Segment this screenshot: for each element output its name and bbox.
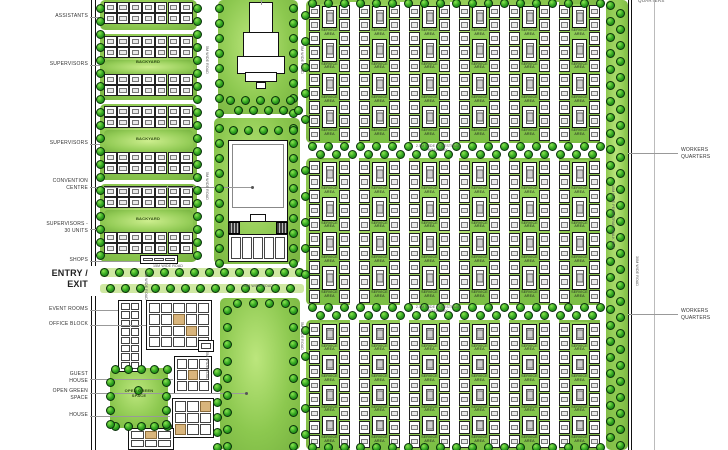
worker-unit <box>559 337 570 350</box>
worker-unit <box>559 115 570 128</box>
rowhouse-unit <box>142 152 155 163</box>
worker-unit <box>359 323 370 336</box>
worker-unit <box>589 261 600 274</box>
room <box>173 303 184 313</box>
leader-line <box>628 314 678 315</box>
service-building <box>472 6 487 28</box>
worker-unit <box>459 247 470 260</box>
room <box>158 440 171 448</box>
tree-icon <box>289 126 298 135</box>
worker-unit <box>559 365 570 378</box>
tree-icon <box>606 353 615 362</box>
tree-icon <box>580 443 589 450</box>
tree-icon <box>606 33 615 42</box>
tree-icon <box>516 142 525 151</box>
worker-unit <box>589 365 600 378</box>
tree-icon <box>280 268 289 277</box>
tree-icon <box>193 69 202 78</box>
tree-icon <box>588 150 597 159</box>
worker-unit <box>559 323 570 336</box>
temple-top <box>249 2 273 34</box>
worker-unit <box>489 101 500 114</box>
tree-icon <box>281 299 290 308</box>
rowhouse-unit <box>168 117 181 128</box>
room <box>149 303 160 313</box>
tree-icon <box>193 121 202 130</box>
tree-icon <box>404 443 413 450</box>
service-area-label: SERVICE AREA <box>420 256 439 264</box>
rowhouse-unit <box>180 47 193 58</box>
worker-unit <box>589 19 600 32</box>
walk-gap <box>550 2 559 145</box>
rowhouse-unit <box>142 74 155 85</box>
worker-unit <box>459 365 470 378</box>
worker-unit <box>589 247 600 260</box>
tree-icon <box>301 192 310 201</box>
service-area-label: SERVICE AREA <box>370 375 389 383</box>
tree-icon <box>420 0 429 8</box>
worker-unit <box>559 32 570 45</box>
walk-gap <box>500 2 509 145</box>
worker-unit <box>509 323 520 336</box>
worker-unit <box>309 337 320 350</box>
tree-icon <box>193 95 202 104</box>
service-building <box>372 106 387 128</box>
tree-icon <box>286 284 295 293</box>
tree-icon <box>223 340 232 349</box>
worker-unit <box>459 190 470 203</box>
worker-unit <box>439 115 450 128</box>
tree-icon <box>316 150 325 159</box>
worker-unit <box>589 175 600 188</box>
rowhouse-unit <box>129 74 142 85</box>
label-house: HOUSE <box>20 412 88 419</box>
tree-icon <box>356 303 365 312</box>
tree-icon <box>229 126 238 135</box>
worker-unit <box>409 247 420 260</box>
room <box>177 381 187 391</box>
tree-icon <box>596 303 605 312</box>
worker-unit <box>489 247 500 260</box>
worker-unit <box>489 351 500 364</box>
tree-icon <box>606 321 615 330</box>
rowhouse-unit <box>117 85 130 96</box>
service-area-label: SERVICE AREA <box>470 129 489 137</box>
worker-unit <box>539 190 550 203</box>
worker-unit <box>359 407 370 420</box>
green-panel-central-park <box>220 298 300 450</box>
tree-icon <box>308 0 317 8</box>
room <box>188 381 198 391</box>
worker-unit <box>439 175 450 188</box>
worker-unit <box>389 46 400 59</box>
room <box>175 401 186 412</box>
tree-icon <box>616 73 625 82</box>
tree-icon <box>606 161 615 170</box>
tree-icon <box>215 139 224 148</box>
worker-unit <box>309 60 320 73</box>
worker-unit <box>309 365 320 378</box>
worker-unit <box>509 161 520 174</box>
service-building <box>472 39 487 61</box>
tree-icon <box>492 150 501 159</box>
worker-unit <box>309 379 320 392</box>
tree-icon <box>279 106 288 115</box>
service-building <box>372 197 387 221</box>
convention-stub <box>250 214 266 222</box>
worker-unit <box>539 218 550 231</box>
west-boundary-a <box>91 0 92 266</box>
tree-icon <box>606 81 615 90</box>
service-area-label: SERVICE AREA <box>470 63 489 71</box>
tree-icon <box>96 108 105 117</box>
tree-icon <box>213 413 222 422</box>
tree-icon <box>564 142 573 151</box>
tree-icon <box>96 56 105 65</box>
worker-unit <box>359 379 370 392</box>
worker-unit <box>459 379 470 392</box>
tree-icon <box>223 374 232 383</box>
rowhouse-unit <box>129 232 142 243</box>
tree-icon <box>193 56 202 65</box>
walk-gap <box>350 2 359 145</box>
tree-icon <box>380 150 389 159</box>
worker-unit <box>339 19 350 32</box>
tree-icon <box>324 0 333 8</box>
tree-icon <box>396 150 405 159</box>
rowhouse-unit <box>142 85 155 96</box>
worker-unit <box>389 32 400 45</box>
service-building <box>322 162 337 186</box>
worker-unit <box>439 379 450 392</box>
tree-icon <box>616 169 625 178</box>
tree-icon <box>372 142 381 151</box>
room <box>173 326 184 336</box>
service-area-label: SERVICE AREA <box>520 222 539 230</box>
tree-icon <box>540 150 549 159</box>
service-area-label: SERVICE AREA <box>520 129 539 137</box>
worker-unit <box>389 365 400 378</box>
tree-icon <box>289 229 298 238</box>
worker-unit <box>459 204 470 217</box>
tree-icon <box>289 244 298 253</box>
worker-unit <box>359 247 370 260</box>
room <box>161 303 172 313</box>
tree-icon <box>388 142 397 151</box>
worker-unit <box>309 233 320 246</box>
convention-wing-left <box>228 222 240 234</box>
tree-icon <box>124 365 133 374</box>
worker-unit <box>509 115 520 128</box>
road-label: 2.5M WIDE PEDESTRIAN WALK WAY <box>408 144 468 152</box>
worker-unit <box>459 128 470 141</box>
worker-unit <box>389 379 400 392</box>
room <box>131 337 140 344</box>
worker-unit <box>559 101 570 114</box>
tree-icon <box>289 306 298 315</box>
tree-icon <box>233 299 242 308</box>
tree-icon <box>137 365 146 374</box>
tree-icon <box>96 4 105 13</box>
worker-unit <box>539 351 550 364</box>
worker-unit <box>309 74 320 87</box>
tree-icon <box>175 268 184 277</box>
worker-unit <box>459 261 470 274</box>
tree-icon <box>580 0 589 8</box>
worker-unit <box>409 19 420 32</box>
worker-unit <box>459 87 470 100</box>
service-area-label: SERVICE AREA <box>520 375 539 383</box>
rowhouse-unit <box>104 2 117 13</box>
service-area-label: SERVICE AREA <box>320 63 339 71</box>
tree-icon <box>332 150 341 159</box>
tree-icon <box>213 443 222 450</box>
leader-line <box>90 261 140 262</box>
worker-unit <box>439 351 450 364</box>
tree-icon <box>364 311 373 320</box>
rowhouse-unit <box>142 232 155 243</box>
worker-unit <box>509 421 520 434</box>
rowhouse-unit <box>168 74 181 85</box>
west-boundary-a2 <box>91 296 92 450</box>
tree-icon <box>476 150 485 159</box>
worker-unit <box>459 218 470 231</box>
worker-unit <box>409 60 420 73</box>
service-area-label: SERVICE AREA <box>370 96 389 104</box>
worker-unit <box>359 74 370 87</box>
worker-unit <box>389 101 400 114</box>
worker-unit <box>589 421 600 434</box>
worker-unit <box>559 19 570 32</box>
rowhouse-unit <box>168 152 181 163</box>
rowhouse-unit <box>155 163 168 174</box>
backyard-label-3: BACKYARD <box>128 217 168 222</box>
service-building <box>322 385 337 405</box>
convention-inner <box>232 144 284 208</box>
worker-unit <box>459 175 470 188</box>
worker-unit <box>489 218 500 231</box>
tree-icon <box>289 139 298 148</box>
worker-unit <box>439 101 450 114</box>
worker-unit <box>389 190 400 203</box>
worker-unit <box>589 60 600 73</box>
room <box>253 237 263 259</box>
worker-unit <box>339 74 350 87</box>
worker-unit <box>539 261 550 274</box>
tree-icon <box>508 311 517 320</box>
service-area-label: SERVICE AREA <box>470 29 489 37</box>
service-building <box>372 416 387 436</box>
room <box>131 328 140 335</box>
worker-unit <box>309 421 320 434</box>
tree-icon <box>468 443 477 450</box>
room <box>149 337 160 347</box>
tree-icon <box>289 357 298 366</box>
service-building <box>572 355 587 375</box>
tree-icon <box>580 142 589 151</box>
label-assistants: ASSISTANTS <box>20 13 88 20</box>
worker-unit <box>459 337 470 350</box>
worker-unit <box>389 19 400 32</box>
tree-icon <box>137 422 146 431</box>
worker-unit <box>339 393 350 406</box>
tree-icon <box>162 378 171 387</box>
worker-unit <box>509 247 520 260</box>
room <box>173 337 184 347</box>
service-building <box>572 39 587 61</box>
tree-icon <box>340 142 349 151</box>
road-label: 5M WIDE ROAD <box>205 172 209 200</box>
service-area-label: SERVICE AREA <box>420 222 439 230</box>
tree-icon <box>289 184 298 193</box>
worker-unit <box>559 60 570 73</box>
worker-unit <box>489 407 500 420</box>
service-building <box>522 355 537 375</box>
worker-unit <box>539 204 550 217</box>
tree-icon <box>223 442 232 450</box>
worker-unit <box>559 407 570 420</box>
worker-unit <box>589 407 600 420</box>
tree-icon <box>500 303 509 312</box>
worker-unit <box>589 128 600 141</box>
tree-icon <box>476 311 485 320</box>
tree-icon <box>215 214 224 223</box>
tree-icon <box>301 352 310 361</box>
tree-icon <box>606 289 615 298</box>
worker-unit <box>389 218 400 231</box>
rowhouse-unit <box>142 2 155 13</box>
worker-unit <box>359 204 370 217</box>
worker-unit <box>539 233 550 246</box>
worker-unit <box>359 87 370 100</box>
tree-icon <box>124 422 133 431</box>
temple-mid <box>243 32 279 58</box>
tree-icon <box>215 64 224 73</box>
service-building <box>572 73 587 95</box>
service-building <box>472 106 487 128</box>
worker-unit <box>559 87 570 100</box>
label-event-rooms: EVENT ROOMS <box>20 306 88 313</box>
worker-unit <box>509 261 520 274</box>
worker-unit <box>309 161 320 174</box>
tree-icon <box>106 392 115 401</box>
service-area-label: SERVICE AREA <box>520 345 539 353</box>
worker-unit <box>489 421 500 434</box>
rowhouse-unit <box>142 163 155 174</box>
tree-icon <box>100 268 109 277</box>
tree-icon <box>96 173 105 182</box>
service-area-label: SERVICE AREA <box>520 96 539 104</box>
worker-unit <box>409 218 420 231</box>
service-area-label: SERVICE AREA <box>570 345 589 353</box>
worker-unit <box>459 32 470 45</box>
service-building <box>422 266 437 290</box>
worker-unit <box>309 218 320 231</box>
worker-unit <box>509 128 520 141</box>
label-convention-centre: CONVENTION CENTRE <box>20 178 88 191</box>
room <box>145 431 158 439</box>
tree-icon <box>193 4 202 13</box>
worker-unit <box>459 275 470 288</box>
tree-icon <box>181 284 190 293</box>
tree-icon <box>532 142 541 151</box>
worker-unit <box>589 32 600 45</box>
tree-icon <box>162 406 171 415</box>
room <box>143 258 153 261</box>
worker-unit <box>559 161 570 174</box>
service-area-label: SERVICE AREA <box>470 96 489 104</box>
rowhouse-unit <box>155 197 168 208</box>
walk-gap <box>450 158 459 307</box>
room <box>121 353 130 360</box>
tree-icon <box>500 142 509 151</box>
tree-icon <box>564 303 573 312</box>
service-building <box>422 355 437 375</box>
room <box>200 424 211 435</box>
service-area-label: SERVICE AREA <box>320 29 339 37</box>
rowhouse-unit <box>129 152 142 163</box>
tree-icon <box>193 199 202 208</box>
service-building <box>522 39 537 61</box>
service-building <box>522 385 537 405</box>
worker-unit <box>559 351 570 364</box>
worker-unit <box>409 175 420 188</box>
service-area-label: SERVICE AREA <box>570 29 589 37</box>
tree-icon <box>324 303 333 312</box>
tree-icon <box>96 134 105 143</box>
worker-unit <box>539 161 550 174</box>
room <box>186 303 197 313</box>
tree-icon <box>286 96 295 105</box>
tree-icon <box>606 401 615 410</box>
service-area-label: SERVICE AREA <box>470 187 489 195</box>
service-building <box>522 232 537 256</box>
walk-gap <box>600 2 606 145</box>
worker-unit <box>309 32 320 45</box>
service-area-label: SERVICE AREA <box>470 256 489 264</box>
worker-unit <box>559 247 570 260</box>
annex-building <box>198 340 214 352</box>
tree-icon <box>516 443 525 450</box>
west-boundary-b2 <box>95 296 96 450</box>
room <box>131 303 140 310</box>
service-building <box>322 355 337 375</box>
worker-unit <box>409 275 420 288</box>
worker-unit <box>439 190 450 203</box>
road-label: 2.5M WIDE PEDESTRIAN WALK WAY <box>408 305 468 313</box>
worker-unit <box>309 128 320 141</box>
worker-unit <box>559 379 570 392</box>
worker-unit <box>509 351 520 364</box>
tree-icon <box>532 443 541 450</box>
service-area-label: SERVICE AREA <box>570 406 589 414</box>
tree-icon <box>606 97 615 106</box>
rowhouse-unit <box>168 243 181 254</box>
tree-icon <box>223 306 232 315</box>
worker-unit <box>509 101 520 114</box>
tree-icon <box>404 0 413 8</box>
tree-icon <box>616 329 625 338</box>
rowhouse-unit <box>117 47 130 58</box>
tree-icon <box>215 169 224 178</box>
worker-unit <box>439 337 450 350</box>
rowhouse-unit <box>168 36 181 47</box>
rowhouse-unit <box>104 85 117 96</box>
worker-unit <box>439 290 450 303</box>
service-area-label: SERVICE AREA <box>370 63 389 71</box>
worker-unit <box>359 393 370 406</box>
tree-icon <box>301 430 310 439</box>
